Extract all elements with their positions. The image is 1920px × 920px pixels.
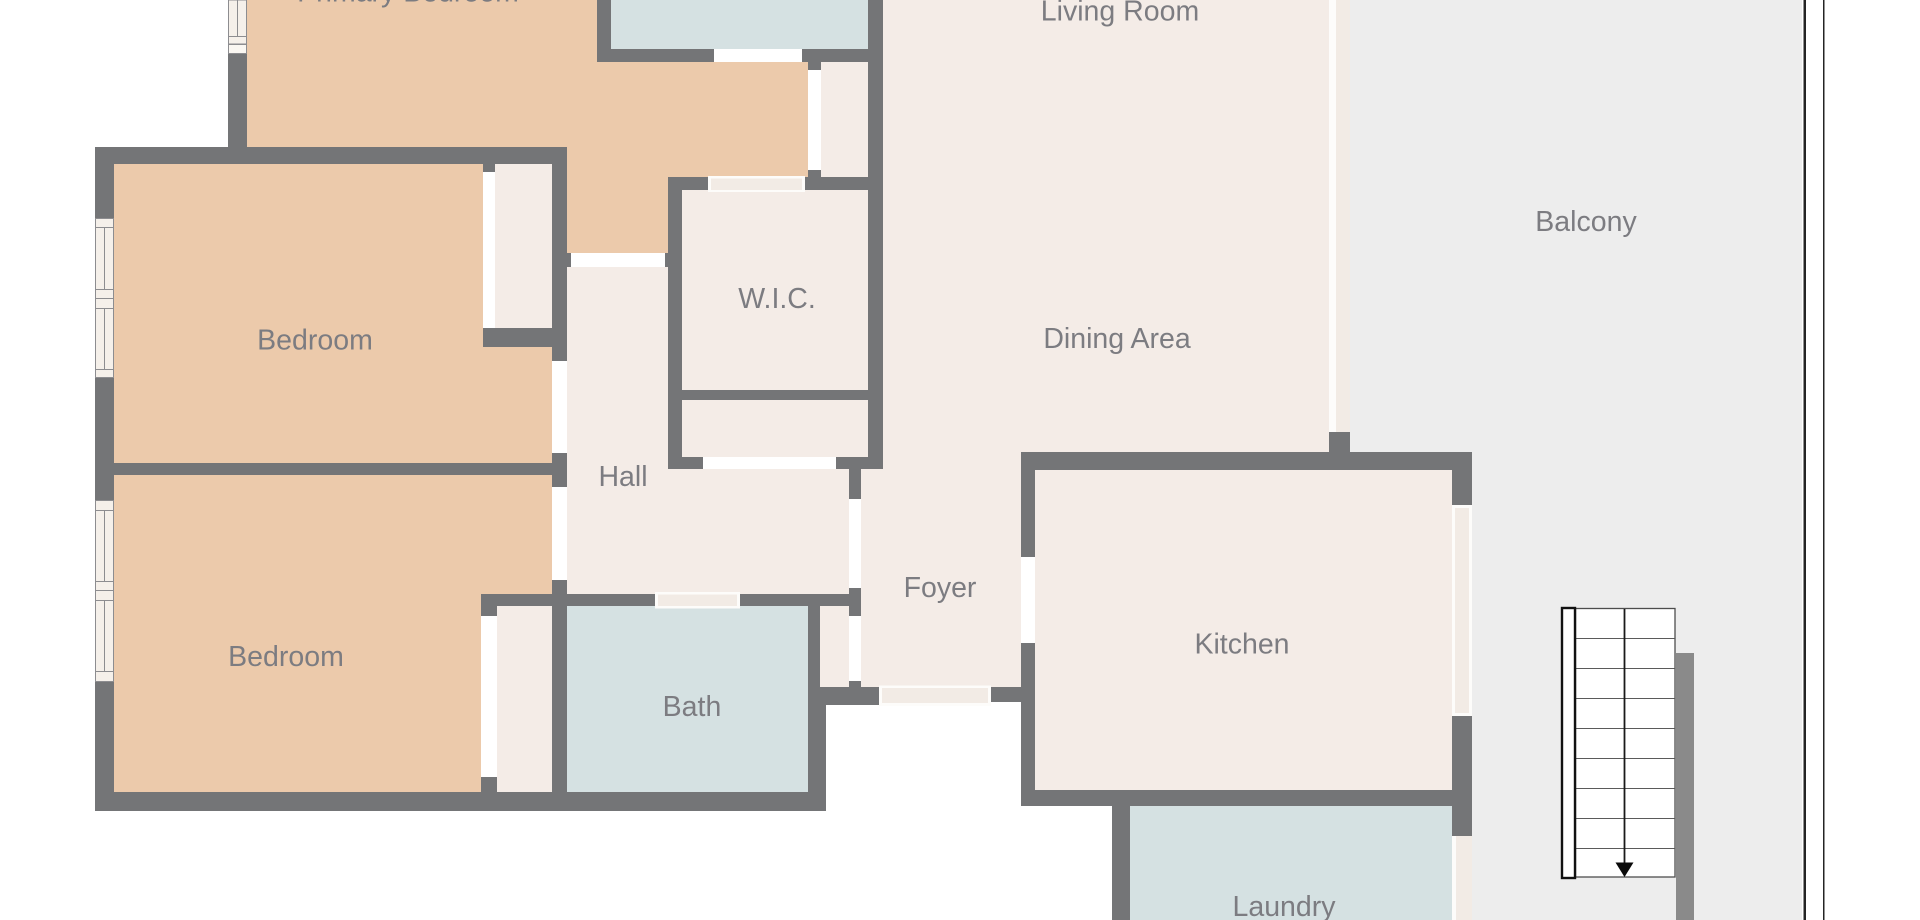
svg-text:Bedroom: Bedroom: [257, 325, 373, 357]
svg-text:Living Room: Living Room: [1041, 0, 1199, 28]
svg-text:Bedroom: Bedroom: [228, 641, 344, 673]
svg-text:Dining Area: Dining Area: [1043, 323, 1190, 355]
svg-text:Kitchen: Kitchen: [1194, 629, 1289, 661]
svg-text:Primary Bedroom: Primary Bedroom: [297, 0, 519, 9]
svg-text:Bath: Bath: [663, 691, 722, 723]
svg-text:W.I.C.: W.I.C.: [738, 283, 816, 315]
svg-text:Laundry: Laundry: [1233, 891, 1337, 920]
svg-text:Balcony: Balcony: [1535, 206, 1637, 238]
svg-text:Foyer: Foyer: [904, 572, 977, 604]
svg-text:Hall: Hall: [598, 461, 647, 493]
